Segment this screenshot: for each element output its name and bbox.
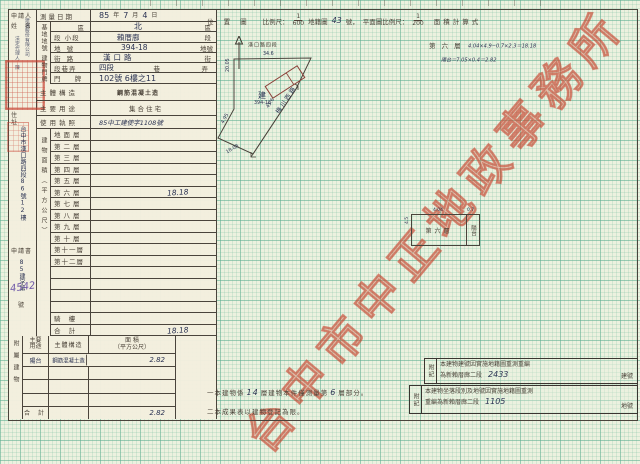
street-dim: 34.6 <box>263 51 274 57</box>
floorplan-dim-top: 4.04 <box>433 207 443 212</box>
annex-total-row: 合 計 2.82 <box>23 407 175 419</box>
floor-label: 第九層 <box>51 221 91 232</box>
structure-label: 主體構造 <box>37 84 91 100</box>
floor-row-empty <box>51 302 216 314</box>
lane-row: 段巷弄 四段 巷 弄 <box>51 63 216 73</box>
floor-row-4: 第四層 <box>51 164 216 176</box>
annex-row-empty <box>23 394 175 407</box>
remark1-new-building-number: 2433 <box>488 369 508 381</box>
floor-label: 第八層 <box>51 210 91 221</box>
annex-header-row: 主要 用途 主體構造 面 積 （平方公尺） <box>23 336 175 354</box>
lane-label: 段巷弄 <box>51 63 91 72</box>
cadastral-map-label: 地籍圖 <box>308 16 328 26</box>
area-calc-title: 面積計算式 <box>434 16 482 26</box>
floor-label: 第十一層 <box>51 244 91 255</box>
floor-row-ground: 地面層 <box>51 129 216 141</box>
remark1-line1: 本建物建號因實施地籍圖重測重編 <box>440 360 634 369</box>
address-value: 台中市漢口路四段86號12樓 <box>18 126 27 244</box>
application-number-stamp: 4542 <box>9 280 36 294</box>
boundary-dim-1: 20.05 <box>225 58 231 72</box>
remark2-line1: 本建物坐落段別及地號因實施地籍圖重測 <box>425 387 634 396</box>
section-value: 賴厝廍 <box>117 32 140 43</box>
survey-date-label: 測量日期 <box>37 10 91 21</box>
annex-area-value: 2.82 <box>89 354 175 366</box>
floor-row-8: 第八層 <box>51 210 216 222</box>
floor-label <box>51 302 91 313</box>
remark1-line2: 為新賴厝廍二段 <box>440 371 482 380</box>
floor-row-6: 第六層18.18 <box>51 187 216 199</box>
floor-row-2: 第二層 <box>51 141 216 153</box>
note-1: 一本建物係 14 層建物本件僅測量第 6 層部分。 <box>207 387 368 397</box>
floorplan-balcony-label: 陽台 <box>469 225 477 236</box>
door-number-value: 102號 6樓之11 <box>99 73 156 84</box>
scale-denominator: 600 <box>293 21 304 27</box>
floor-label: 騎 樓 <box>51 313 91 324</box>
day-unit: 日 <box>151 12 157 19</box>
floorplan-dim-top2: 0.7 <box>467 207 474 212</box>
plan-scale-fraction: 1 200 <box>412 14 423 27</box>
floor-row-11: 第十一層 <box>51 244 216 256</box>
area-column-label: 建物面積（平方公尺） <box>39 137 48 336</box>
remark1-label: 附記 <box>425 359 437 383</box>
land-district-row: 區 北 區 <box>51 22 216 32</box>
note1-pre: 一本建物係 <box>207 387 245 397</box>
structure-value: 鋼筋混凝土造 <box>117 88 159 97</box>
month-unit: 月 <box>132 12 138 19</box>
floor-row-3: 第三層 <box>51 152 216 164</box>
remark-box-building-number: 附記 本建物建號因實施地籍圖重測重編 為新賴厝廍二段 2433 建號 <box>424 358 638 384</box>
annex-structure-value: 鋼筋混凝土造 <box>51 355 87 366</box>
section-suffix: 段 <box>205 32 212 42</box>
annex-group-label-cell: 附屬建物 <box>9 336 23 419</box>
street-name-label: 漢口路四段 <box>248 43 278 48</box>
floor-row-empty <box>51 267 216 279</box>
note2-text: 二本成果表以建物登記為限。 <box>207 406 305 416</box>
location-sketch <box>201 50 346 175</box>
land-section-row: 段 小段 賴厝廍 段 <box>51 32 216 43</box>
section-label: 段 小段 <box>51 32 91 42</box>
floors-total-row: 合 計18.18 <box>51 325 216 336</box>
survey-year: 85 <box>99 11 109 20</box>
floor-row-9: 第九層 <box>51 221 216 233</box>
plan-scale-denominator: 200 <box>412 21 423 27</box>
door-group-label: 建物門牌 <box>37 53 51 84</box>
floor-row-empty <box>51 290 216 302</box>
annex-structure-header: 主體構造 <box>49 336 89 353</box>
floor-label: 第五層 <box>51 175 91 186</box>
floor-row-10: 第十層 <box>51 233 216 245</box>
survey-sheet: 申請人 姓 名 建設股份有限公司 法定代理人．陳 住 址 台中市漢口路四段86號… <box>8 9 638 421</box>
cadastral-suffix: 號， <box>346 16 359 26</box>
door-number-row: 門 牌 102號 6樓之11 <box>51 73 216 84</box>
remark2-line2: 重編為新賴厝廍二段 <box>425 398 479 407</box>
floor-area-value: 18.18 <box>167 187 189 197</box>
survey-day: 4 <box>142 11 147 20</box>
structure-row: 主體構造 鋼筋混凝土造 <box>37 84 216 101</box>
floor-label: 第四層 <box>51 164 91 175</box>
annex-row-empty <box>23 367 175 380</box>
floors-total-label: 合 計 <box>51 325 91 336</box>
plan-scale-label: 平面圖比例尺： <box>363 16 409 26</box>
license-label: 使用執照 <box>37 116 91 128</box>
remark2-label: 附記 <box>410 386 422 413</box>
license-row: 使用執照 85中工建使字1108號 <box>37 116 216 129</box>
annex-use-value: 陽台 <box>23 354 49 366</box>
annex-row-balcony: 陽台 鋼筋混凝土造 2.82 <box>23 354 175 367</box>
scale-fraction: 1 600 <box>293 14 304 27</box>
floor-label: 第十層 <box>51 233 91 244</box>
street-label: 街 路 <box>51 53 91 62</box>
calc-line-floor6: 第 六 層 4.04×4.9−0.7×2.3＝18.18 <box>429 40 548 50</box>
land-group-label: 基地地號 <box>37 22 51 53</box>
area-column-label-cell: 建物面積（平方公尺） <box>37 129 51 336</box>
calc-floor-formula: 4.04×4.9−0.7×2.3＝18.18 <box>468 44 536 49</box>
annex-area-header2: （平方公尺） <box>114 344 150 351</box>
annex-table: 主要 用途 主體構造 面 積 （平方公尺） 陽台 鋼筋混凝土造 2.82 <box>23 336 176 419</box>
annex-row-empty <box>23 380 175 393</box>
note1-suffix: 層部分。 <box>338 387 368 397</box>
floor-label <box>51 267 91 278</box>
remark-box-parcel-number: 附記 本建物坐落段別及地號因實施地籍圖重測 重編為新賴厝廍二段 1105 地號 <box>409 385 638 414</box>
remark1-suffix: 建號 <box>621 372 633 381</box>
scale-label: 比例尺： <box>263 16 289 26</box>
survey-date-row: 測量日期 85 年 7 月 4 日 <box>37 10 216 22</box>
applicant-block: 申請人 姓 名 建設股份有限公司 法定代理人．陳 住 址 台中市漢口路四段86號… <box>9 10 37 336</box>
annex-use-header2: 用途 <box>29 344 41 351</box>
form-table: 申請人 姓 名 建設股份有限公司 法定代理人．陳 住 址 台中市漢口路四段86號… <box>9 10 217 419</box>
floor-label <box>51 290 91 301</box>
floor-row-7: 第七層 <box>51 198 216 210</box>
floor-row-5: 第五層 <box>51 175 216 187</box>
floor-label: 第十二層 <box>51 256 91 267</box>
location-map-title: 位 置 圖 <box>207 16 251 26</box>
floor-label <box>51 279 91 290</box>
floor-label: 第七層 <box>51 198 91 209</box>
usage-row: 主要用途 集合住宅 <box>37 101 216 116</box>
street-row: 街 路 漢口路 街 <box>51 53 216 63</box>
year-unit: 年 <box>113 12 119 19</box>
note1-floors-count: 14 <box>247 388 259 397</box>
floor-label: 第三層 <box>51 152 91 163</box>
parcel-label: 地 號 <box>51 43 91 52</box>
floorplan: 第六層 陽台 <box>411 214 480 246</box>
annex-group-label: 附屬建物 <box>11 340 20 419</box>
door-number-label: 門 牌 <box>51 73 91 83</box>
note1-floor-number: 6 <box>330 388 336 397</box>
floorplan-dim-left: 4.5 <box>404 217 409 224</box>
survey-month: 7 <box>123 11 128 20</box>
calc-line-balcony: 陽台＝7.05×0.4＝2.82 <box>441 58 497 63</box>
usage-label: 主要用途 <box>37 101 91 115</box>
note1-mid: 層建物本件僅測量第 <box>261 387 329 397</box>
application-label: 申請書 <box>11 248 32 255</box>
floor-label: 第二層 <box>51 141 91 152</box>
top-edge-tick-marks <box>150 0 550 6</box>
annex-total-label: 合 計 <box>23 407 49 419</box>
floor-label: 地面層 <box>51 129 91 140</box>
scanned-survey-form-page: { "doc": { "watermark": "台中市中正地政事務所", "n… <box>0 0 640 425</box>
floors-table: 地面層 第二層 第三層 第四層 第五層 第六層18.18 第七層 第八層 第九層… <box>51 129 216 336</box>
lane-suffix1: 巷 <box>154 63 161 73</box>
annex-total-value: 2.82 <box>89 407 175 419</box>
plot-header: 位 置 圖 比例尺： 1 600 地籍圖 43 號， 平面圖比例尺： 1 200… <box>207 14 481 27</box>
floor-row-empty <box>51 279 216 291</box>
remark2-new-parcel-number: 1105 <box>485 396 505 408</box>
calc-floor-label: 第 六 層 <box>429 40 463 50</box>
license-value: 85中工建使字1108號 <box>99 117 163 127</box>
parcel-value: 394-18 <box>121 43 148 52</box>
usage-value: 集合住宅 <box>129 103 163 113</box>
lane-value: 四段 <box>99 62 114 73</box>
note-2: 二本成果表以建物登記為限。 <box>207 406 305 416</box>
application-suffix: 號 <box>18 302 24 309</box>
floorplan-main-label: 第六層 <box>425 226 452 235</box>
district-value: 北 <box>134 21 142 32</box>
floor-row-12: 第十二層 <box>51 256 216 268</box>
floor-label: 第六層 <box>51 187 91 198</box>
floors-total-value: 18.18 <box>167 325 189 335</box>
remark2-suffix: 地號 <box>621 402 633 411</box>
arcade-row: 騎 樓 <box>51 313 216 325</box>
district-label: 區 <box>51 22 91 31</box>
cadastral-map-number: 43 <box>332 16 342 25</box>
